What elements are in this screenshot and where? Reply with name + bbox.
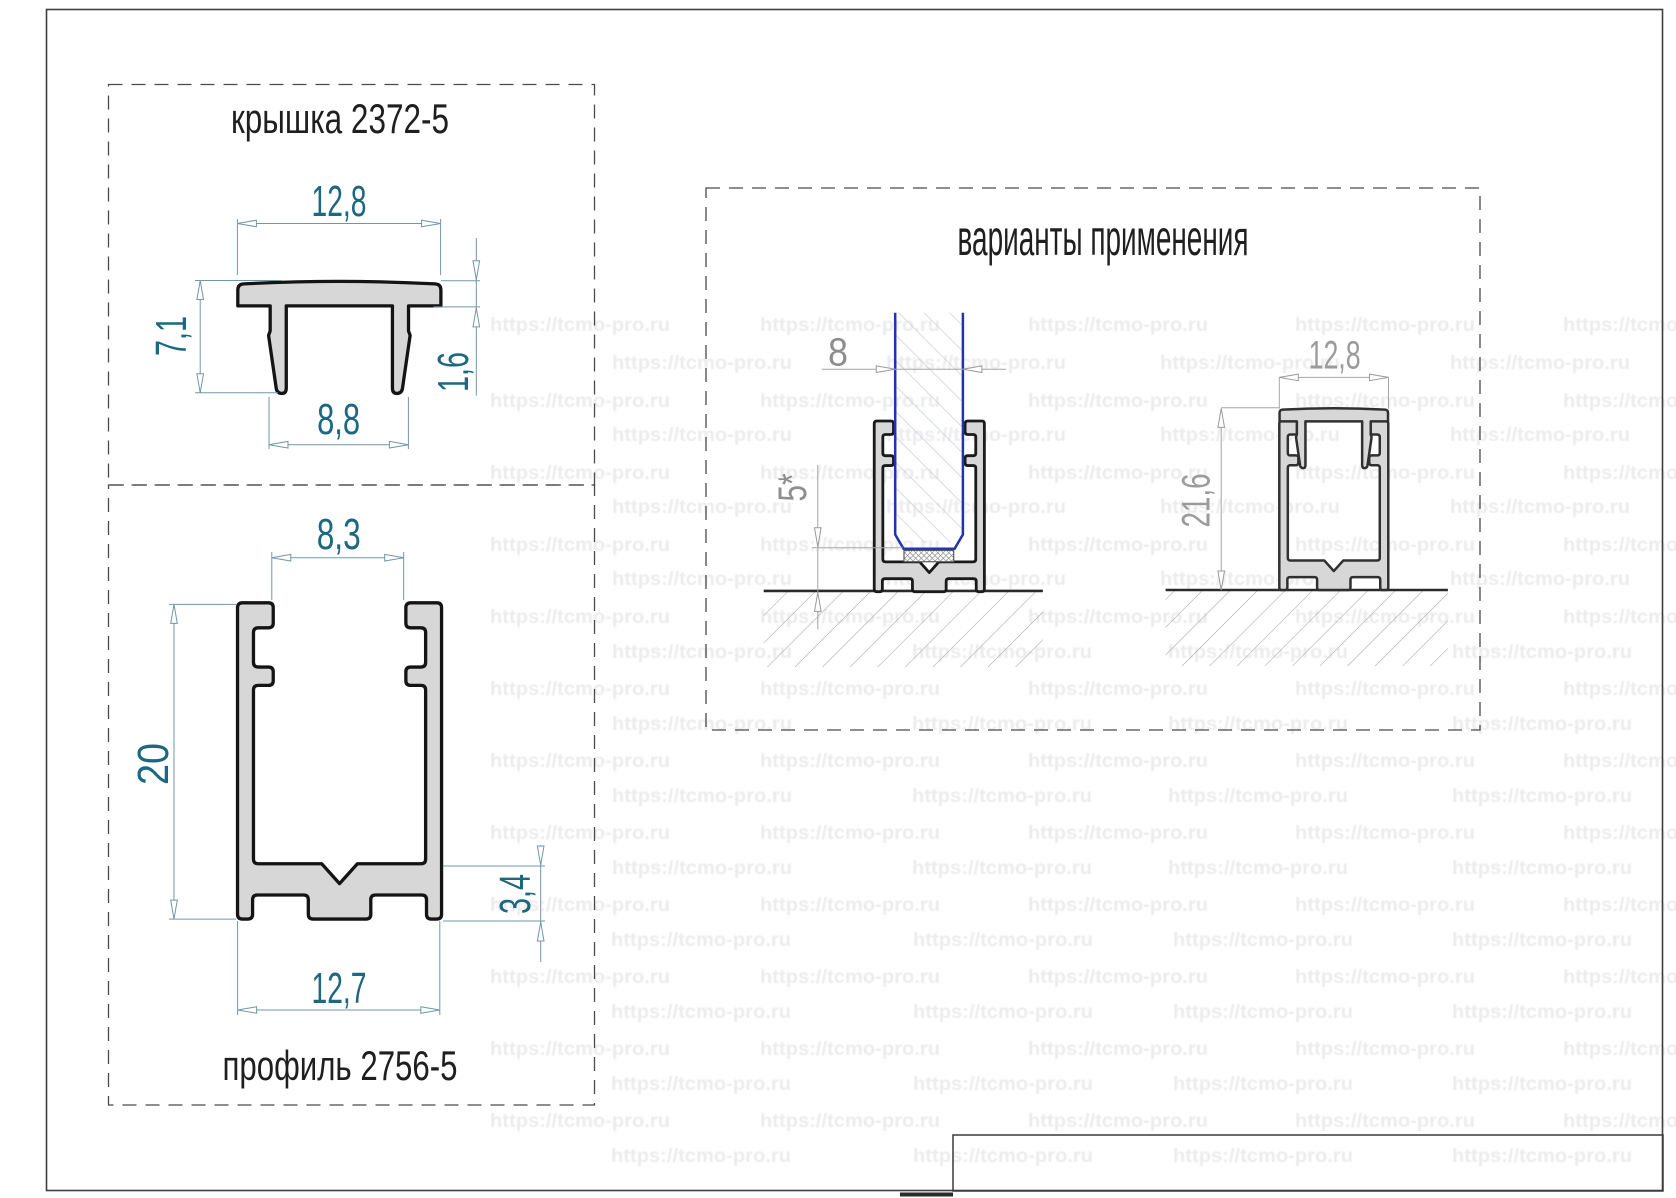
svg-text:профиль 2756-5: профиль 2756-5 — [223, 1042, 458, 1089]
svg-text:крышка 2372-5: крышка 2372-5 — [231, 95, 449, 142]
svg-text:https://tcmo-pro.ru: https://tcmo-pro.ru — [1295, 894, 1475, 916]
svg-text:https://tcmo-pro.ru: https://tcmo-pro.ru — [1028, 894, 1208, 916]
svg-text:https://tcmo-pro.ru: https://tcmo-pro.ru — [1563, 390, 1676, 412]
svg-text:https://tcmo-pro.ru: https://tcmo-pro.ru — [1563, 894, 1676, 916]
svg-text:https://tcmo-pro.ru: https://tcmo-pro.ru — [913, 1001, 1093, 1023]
svg-text:https://tcmo-pro.ru: https://tcmo-pro.ru — [760, 1110, 940, 1132]
svg-text:https://tcmo-pro.ru: https://tcmo-pro.ru — [1173, 929, 1353, 951]
svg-text:8: 8 — [828, 331, 848, 375]
svg-text:https://tcmo-pro.ru: https://tcmo-pro.ru — [490, 314, 670, 336]
svg-text:https://tcmo-pro.ru: https://tcmo-pro.ru — [913, 1145, 1093, 1167]
svg-text:https://tcmo-pro.ru: https://tcmo-pro.ru — [1563, 462, 1676, 484]
svg-text:https://tcmo-pro.ru: https://tcmo-pro.ru — [1452, 713, 1632, 735]
svg-text:https://tcmo-pro.ru: https://tcmo-pro.ru — [1295, 822, 1475, 844]
svg-text:https://tcmo-pro.ru: https://tcmo-pro.ru — [1452, 929, 1632, 951]
svg-text:https://tcmo-pro.ru: https://tcmo-pro.ru — [612, 424, 792, 446]
svg-text:12,8: 12,8 — [312, 177, 367, 226]
svg-text:https://tcmo-pro.ru: https://tcmo-pro.ru — [1450, 568, 1630, 590]
svg-text:https://tcmo-pro.ru: https://tcmo-pro.ru — [611, 1145, 791, 1167]
svg-text:https://tcmo-pro.ru: https://tcmo-pro.ru — [1028, 314, 1208, 336]
svg-text:https://tcmo-pro.ru: https://tcmo-pro.ru — [760, 822, 940, 844]
svg-text:8,8: 8,8 — [317, 395, 360, 444]
svg-text:https://tcmo-pro.ru: https://tcmo-pro.ru — [1028, 390, 1208, 412]
svg-text:https://tcmo-pro.ru: https://tcmo-pro.ru — [1295, 750, 1475, 772]
svg-text:https://tcmo-pro.ru: https://tcmo-pro.ru — [1295, 966, 1475, 988]
svg-text:https://tcmo-pro.ru: https://tcmo-pro.ru — [1295, 1038, 1475, 1060]
svg-text:https://tcmo-pro.ru: https://tcmo-pro.ru — [1563, 1038, 1676, 1060]
svg-text:https://tcmo-pro.ru: https://tcmo-pro.ru — [490, 534, 670, 556]
svg-text:https://tcmo-pro.ru: https://tcmo-pro.ru — [1450, 424, 1630, 446]
svg-text:https://tcmo-pro.ru: https://tcmo-pro.ru — [760, 1038, 940, 1060]
svg-text:https://tcmo-pro.ru: https://tcmo-pro.ru — [1168, 857, 1348, 879]
svg-text:https://tcmo-pro.ru: https://tcmo-pro.ru — [490, 1038, 670, 1060]
svg-text:https://tcmo-pro.ru: https://tcmo-pro.ru — [490, 390, 670, 412]
svg-text:https://tcmo-pro.ru: https://tcmo-pro.ru — [760, 678, 940, 700]
svg-text:https://tcmo-pro.ru: https://tcmo-pro.ru — [1452, 1001, 1632, 1023]
svg-text:https://tcmo-pro.ru: https://tcmo-pro.ru — [490, 678, 670, 700]
svg-text:20: 20 — [129, 743, 178, 785]
svg-text:12,7: 12,7 — [312, 964, 367, 1013]
svg-text:https://tcmo-pro.ru: https://tcmo-pro.ru — [1160, 424, 1340, 446]
svg-text:https://tcmo-pro.ru: https://tcmo-pro.ru — [1028, 678, 1208, 700]
svg-text:https://tcmo-pro.ru: https://tcmo-pro.ru — [913, 1073, 1093, 1095]
svg-text:https://tcmo-pro.ru: https://tcmo-pro.ru — [912, 713, 1092, 735]
svg-text:https://tcmo-pro.ru: https://tcmo-pro.ru — [490, 966, 670, 988]
svg-text:https://tcmo-pro.ru: https://tcmo-pro.ru — [1563, 822, 1676, 844]
svg-text:https://tcmo-pro.ru: https://tcmo-pro.ru — [1028, 1110, 1208, 1132]
svg-text:https://tcmo-pro.ru: https://tcmo-pro.ru — [1452, 1145, 1632, 1167]
svg-text:https://tcmo-pro.ru: https://tcmo-pro.ru — [1295, 678, 1475, 700]
svg-text:https://tcmo-pro.ru: https://tcmo-pro.ru — [1028, 822, 1208, 844]
svg-text:https://tcmo-pro.ru: https://tcmo-pro.ru — [912, 857, 1092, 879]
svg-text:12,8: 12,8 — [1309, 334, 1361, 378]
svg-text:https://tcmo-pro.ru: https://tcmo-pro.ru — [1028, 1038, 1208, 1060]
svg-text:https://tcmo-pro.ru: https://tcmo-pro.ru — [1450, 352, 1630, 374]
svg-text:https://tcmo-pro.ru: https://tcmo-pro.ru — [1563, 606, 1676, 628]
svg-text:7,1: 7,1 — [147, 316, 196, 356]
svg-text:8,3: 8,3 — [317, 510, 361, 559]
svg-text:https://tcmo-pro.ru: https://tcmo-pro.ru — [912, 785, 1092, 807]
svg-text:5*: 5* — [771, 474, 815, 502]
svg-text:https://tcmo-pro.ru: https://tcmo-pro.ru — [490, 606, 670, 628]
svg-text:https://tcmo-pro.ru: https://tcmo-pro.ru — [1028, 966, 1208, 988]
svg-text:https://tcmo-pro.ru: https://tcmo-pro.ru — [760, 750, 940, 772]
svg-text:https://tcmo-pro.ru: https://tcmo-pro.ru — [1173, 1073, 1353, 1095]
svg-text:https://tcmo-pro.ru: https://tcmo-pro.ru — [1563, 966, 1676, 988]
svg-text:https://tcmo-pro.ru: https://tcmo-pro.ru — [760, 894, 940, 916]
svg-text:https://tcmo-pro.ru: https://tcmo-pro.ru — [913, 929, 1093, 951]
svg-text:https://tcmo-pro.ru: https://tcmo-pro.ru — [1173, 1001, 1353, 1023]
svg-text:https://tcmo-pro.ru: https://tcmo-pro.ru — [1563, 750, 1676, 772]
svg-text:https://tcmo-pro.ru: https://tcmo-pro.ru — [611, 1001, 791, 1023]
svg-text:https://tcmo-pro.ru: https://tcmo-pro.ru — [611, 929, 791, 951]
svg-text:https://tcmo-pro.ru: https://tcmo-pro.ru — [1563, 1110, 1676, 1132]
svg-text:https://tcmo-pro.ru: https://tcmo-pro.ru — [1295, 1110, 1475, 1132]
svg-text:https://tcmo-pro.ru: https://tcmo-pro.ru — [1563, 678, 1676, 700]
svg-text:https://tcmo-pro.ru: https://tcmo-pro.ru — [1452, 641, 1632, 663]
svg-text:https://tcmo-pro.ru: https://tcmo-pro.ru — [611, 1073, 791, 1095]
svg-text:1,6: 1,6 — [429, 352, 478, 392]
svg-text:https://tcmo-pro.ru: https://tcmo-pro.ru — [1028, 750, 1208, 772]
svg-text:https://tcmo-pro.ru: https://tcmo-pro.ru — [1452, 785, 1632, 807]
svg-text:https://tcmo-pro.ru: https://tcmo-pro.ru — [490, 1110, 670, 1132]
svg-text:https://tcmo-pro.ru: https://tcmo-pro.ru — [1563, 534, 1676, 556]
svg-text:3,4: 3,4 — [491, 874, 540, 914]
svg-text:https://tcmo-pro.ru: https://tcmo-pro.ru — [1028, 534, 1208, 556]
svg-text:https://tcmo-pro.ru: https://tcmo-pro.ru — [1173, 1145, 1353, 1167]
svg-text:https://tcmo-pro.ru: https://tcmo-pro.ru — [1452, 1073, 1632, 1095]
svg-text:https://tcmo-pro.ru: https://tcmo-pro.ru — [612, 713, 792, 735]
svg-text:https://tcmo-pro.ru: https://tcmo-pro.ru — [490, 822, 670, 844]
svg-text:https://tcmo-pro.ru: https://tcmo-pro.ru — [612, 857, 792, 879]
svg-text:https://tcmo-pro.ru: https://tcmo-pro.ru — [760, 966, 940, 988]
svg-text:https://tcmo-pro.ru: https://tcmo-pro.ru — [1168, 785, 1348, 807]
svg-text:https://tcmo-pro.ru: https://tcmo-pro.ru — [612, 785, 792, 807]
svg-text:https://tcmo-pro.ru: https://tcmo-pro.ru — [1563, 314, 1676, 336]
svg-text:https://tcmo-pro.ru: https://tcmo-pro.ru — [612, 496, 792, 518]
svg-text:https://tcmo-pro.ru: https://tcmo-pro.ru — [1168, 713, 1348, 735]
svg-text:https://tcmo-pro.ru: https://tcmo-pro.ru — [1450, 496, 1630, 518]
svg-text:https://tcmo-pro.ru: https://tcmo-pro.ru — [612, 568, 792, 590]
svg-text:https://tcmo-pro.ru: https://tcmo-pro.ru — [612, 352, 792, 374]
svg-text:21,6: 21,6 — [1175, 474, 1219, 528]
svg-text:https://tcmo-pro.ru: https://tcmo-pro.ru — [490, 750, 670, 772]
svg-text:варианты применения: варианты применения — [958, 210, 1249, 266]
svg-text:https://tcmo-pro.ru: https://tcmo-pro.ru — [1452, 857, 1632, 879]
svg-text:https://tcmo-pro.ru: https://tcmo-pro.ru — [490, 462, 670, 484]
